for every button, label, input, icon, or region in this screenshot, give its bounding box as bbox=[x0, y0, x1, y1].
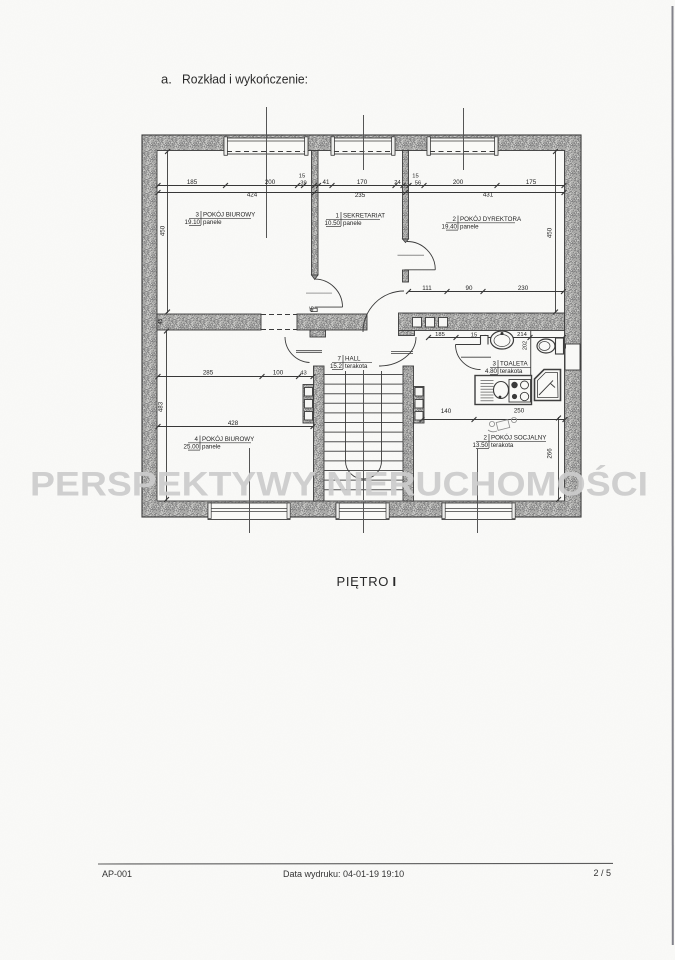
svg-text:424: 424 bbox=[247, 192, 258, 199]
svg-text:214: 214 bbox=[517, 332, 527, 338]
svg-text:panele: panele bbox=[460, 223, 479, 230]
svg-text:266: 266 bbox=[547, 448, 554, 459]
svg-text:100: 100 bbox=[273, 370, 284, 377]
svg-text:25.00: 25.00 bbox=[184, 443, 200, 450]
svg-text:175: 175 bbox=[526, 179, 537, 186]
svg-text:4.80: 4.80 bbox=[485, 368, 498, 375]
svg-text:15.2: 15.2 bbox=[330, 363, 343, 370]
svg-text:111: 111 bbox=[422, 285, 432, 292]
svg-text:terakota: terakota bbox=[345, 363, 368, 370]
svg-text:PERSPEKTYWY NIERUCHOMOŚCI: PERSPEKTYWY NIERUCHOMOŚCI bbox=[30, 466, 648, 504]
svg-text:483: 483 bbox=[158, 401, 165, 412]
svg-text:428: 428 bbox=[228, 420, 239, 427]
svg-text:13.50: 13.50 bbox=[473, 442, 489, 449]
svg-text:450: 450 bbox=[547, 227, 554, 238]
svg-text:2: 2 bbox=[484, 435, 488, 442]
svg-text:4: 4 bbox=[195, 436, 199, 443]
svg-text:431: 431 bbox=[483, 192, 494, 199]
svg-text:43: 43 bbox=[300, 370, 306, 376]
svg-text:POKÓJ BIUROWY: POKÓJ BIUROWY bbox=[203, 212, 255, 219]
svg-text:56: 56 bbox=[415, 181, 421, 187]
svg-text:Rozkład i wykończenie:: Rozkład i wykończenie: bbox=[182, 72, 308, 87]
svg-text:202: 202 bbox=[523, 341, 529, 350]
svg-text:10.50: 10.50 bbox=[325, 220, 341, 227]
svg-text:230: 230 bbox=[518, 285, 529, 292]
svg-text:15: 15 bbox=[299, 174, 305, 180]
svg-text:15: 15 bbox=[471, 332, 477, 338]
svg-text:POKÓJ SOCJALNY: POKÓJ SOCJALNY bbox=[491, 435, 546, 442]
svg-text:PIĘTRO: PIĘTRO bbox=[337, 574, 390, 589]
svg-text:7: 7 bbox=[338, 356, 342, 363]
svg-text:2 / 5: 2 / 5 bbox=[593, 868, 611, 878]
svg-text:panele: panele bbox=[203, 219, 222, 226]
svg-text:TOALETA: TOALETA bbox=[500, 361, 528, 368]
svg-text:45: 45 bbox=[310, 306, 316, 312]
svg-text:Data wydruku: 04-01-19 19:10: Data wydruku: 04-01-19 19:10 bbox=[283, 869, 404, 879]
svg-text:200: 200 bbox=[453, 179, 464, 186]
svg-text:235: 235 bbox=[355, 192, 366, 199]
svg-text:285: 285 bbox=[203, 369, 214, 376]
svg-text:I: I bbox=[393, 574, 397, 589]
svg-text:terakota: terakota bbox=[491, 442, 514, 449]
svg-text:HALL: HALL bbox=[345, 356, 361, 363]
svg-text:45: 45 bbox=[158, 319, 164, 325]
svg-text:panele: panele bbox=[343, 220, 362, 227]
svg-text:POKÓJ BIUROWY: POKÓJ BIUROWY bbox=[202, 436, 254, 443]
svg-text:15: 15 bbox=[412, 174, 418, 180]
svg-text:200: 200 bbox=[265, 179, 276, 186]
svg-text:19.10: 19.10 bbox=[185, 219, 201, 226]
svg-text:41: 41 bbox=[323, 179, 330, 186]
svg-text:1: 1 bbox=[336, 213, 340, 220]
svg-text:170: 170 bbox=[357, 179, 368, 186]
svg-text:AP-001: AP-001 bbox=[102, 869, 132, 879]
svg-text:3: 3 bbox=[196, 212, 200, 219]
svg-text:185: 185 bbox=[435, 332, 445, 338]
svg-text:450: 450 bbox=[160, 225, 167, 236]
svg-text:POKÓJ DYREKTORA: POKÓJ DYREKTORA bbox=[460, 216, 522, 223]
svg-text:2: 2 bbox=[453, 216, 457, 223]
svg-text:3: 3 bbox=[493, 361, 497, 368]
svg-text:185: 185 bbox=[187, 179, 198, 186]
svg-text:SEKRETARIAT: SEKRETARIAT bbox=[343, 213, 385, 220]
svg-text:panele: panele bbox=[202, 443, 221, 450]
svg-text:19.40: 19.40 bbox=[442, 223, 458, 230]
svg-text:90: 90 bbox=[466, 285, 473, 292]
svg-text:140: 140 bbox=[441, 408, 452, 415]
svg-text:250: 250 bbox=[514, 408, 525, 415]
svg-text:24: 24 bbox=[394, 180, 401, 186]
svg-text:a.: a. bbox=[161, 72, 172, 87]
svg-text:39: 39 bbox=[300, 181, 306, 187]
svg-text:terakota: terakota bbox=[500, 368, 523, 375]
